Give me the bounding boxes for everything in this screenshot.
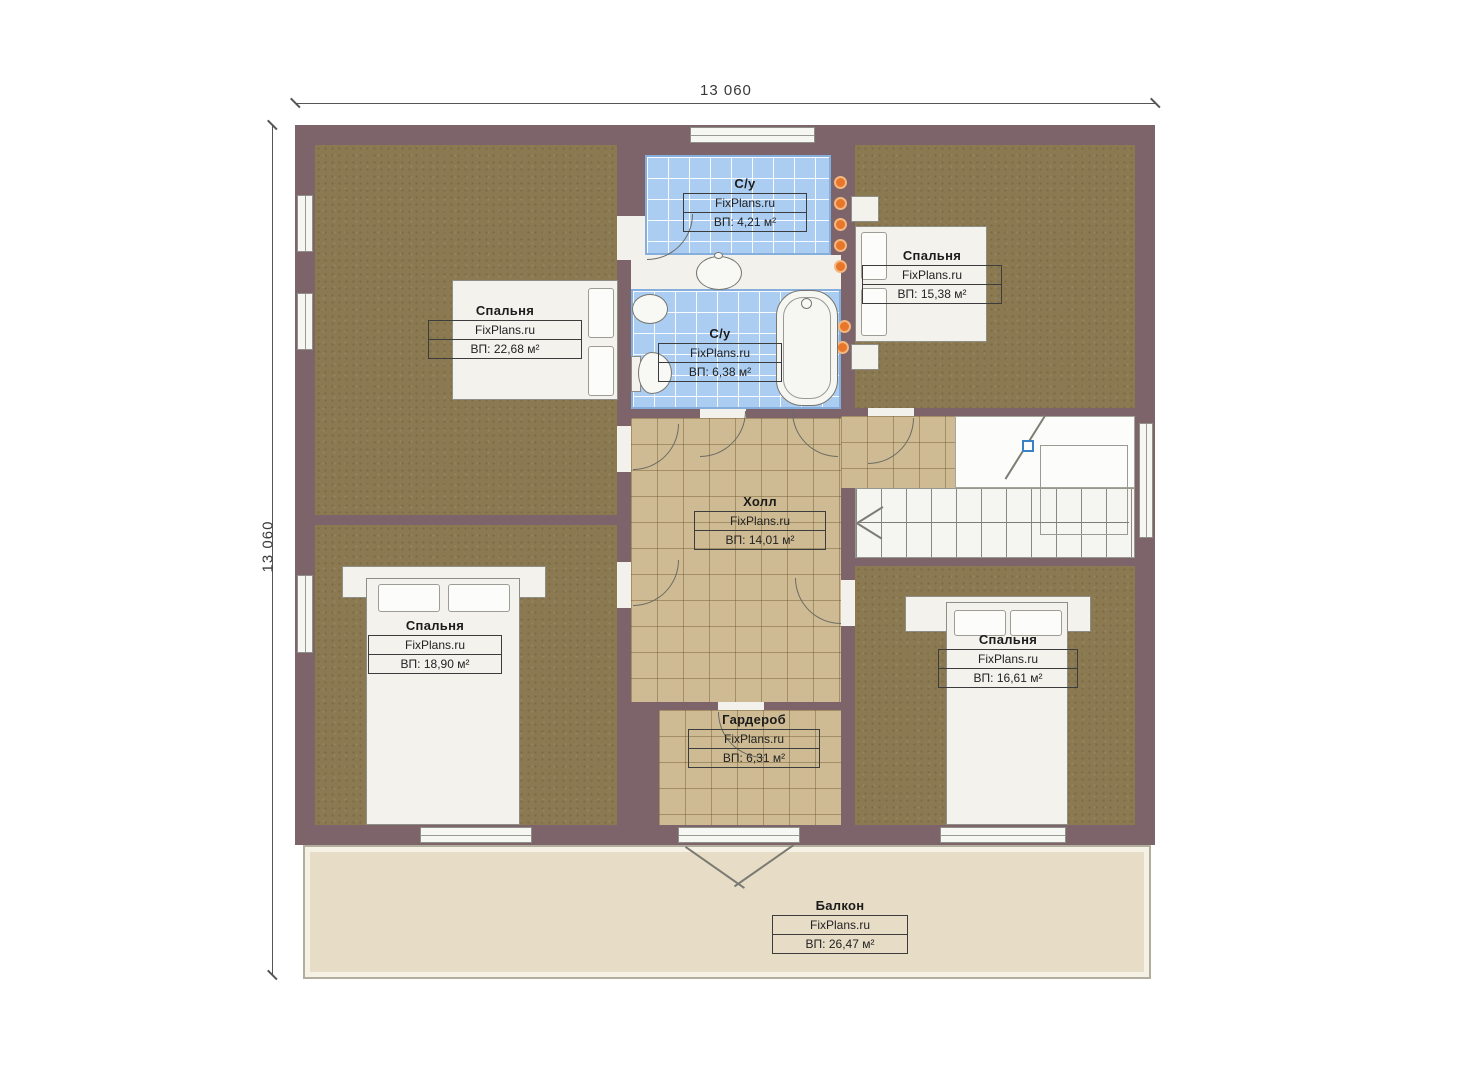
door-opening — [617, 216, 645, 260]
room-brand: FixPlans.ru — [939, 650, 1077, 668]
pillow — [588, 346, 614, 396]
nightstand — [851, 344, 879, 370]
room-area: ВП: 16,61 м² — [939, 668, 1077, 687]
wall-light-dot — [834, 239, 847, 252]
bed — [366, 578, 520, 825]
stair-walk-line — [857, 522, 1129, 523]
room-label-bedroom-top-left: Спальня FixPlans.ru ВП: 22,68 м² — [428, 303, 582, 359]
room-label-bathroom-top: С/у FixPlans.ru ВП: 4,21 м² — [683, 176, 807, 232]
room-name: С/у — [658, 326, 782, 341]
room-label-bedroom-bottom-left: Спальня FixPlans.ru ВП: 18,90 м² — [368, 618, 502, 674]
room-label-bedroom-top-right: Спальня FixPlans.ru ВП: 15,38 м² — [862, 248, 1002, 304]
room-name: Спальня — [862, 248, 1002, 263]
faucet — [714, 252, 723, 259]
room-label-bathroom-main: С/у FixPlans.ru ВП: 6,38 м² — [658, 326, 782, 382]
bathtub-inner — [783, 297, 831, 399]
room-label-bedroom-bottom-right: Спальня FixPlans.ru ВП: 16,61 м² — [938, 632, 1078, 688]
floor-plan-canvas: 13 060 13 060 — [0, 0, 1474, 1080]
balcony-door-opening — [678, 827, 800, 843]
room-label-wardrobe: Гардероб FixPlans.ru ВП: 6,31 м² — [688, 712, 820, 768]
room-area: ВП: 14,01 м² — [695, 530, 825, 549]
window — [1139, 423, 1153, 538]
wall-light-dot — [834, 218, 847, 231]
room-area: ВП: 26,47 м² — [773, 934, 907, 953]
room-name: С/у — [683, 176, 807, 191]
window — [297, 195, 313, 252]
room-label-hall: Холл FixPlans.ru ВП: 14,01 м² — [694, 494, 826, 550]
room-brand: FixPlans.ru — [369, 636, 501, 654]
bathtub-drain — [801, 298, 812, 309]
room-label-balcony: Балкон FixPlans.ru ВП: 26,47 м² — [772, 898, 908, 954]
window — [690, 127, 815, 143]
pillow — [588, 288, 614, 338]
wall-light-dot — [834, 260, 847, 273]
room-brand: FixPlans.ru — [429, 321, 581, 339]
window — [297, 293, 313, 350]
window — [420, 827, 532, 843]
dimension-line-top — [295, 103, 1155, 104]
window — [297, 575, 313, 653]
stair-marker — [1022, 440, 1034, 452]
room-brand: FixPlans.ru — [695, 512, 825, 530]
door-opening — [617, 562, 631, 608]
nightstand — [851, 196, 879, 222]
room-brand: FixPlans.ru — [659, 344, 781, 362]
wall-light-dot — [838, 320, 851, 333]
room-area: ВП: 18,90 м² — [369, 654, 501, 673]
wall-light-dot — [834, 176, 847, 189]
room-area: ВП: 6,31 м² — [689, 748, 819, 767]
room-area: ВП: 15,38 м² — [863, 284, 1001, 303]
room-name: Спальня — [938, 632, 1078, 647]
room-area: ВП: 4,21 м² — [684, 212, 806, 231]
room-name: Спальня — [428, 303, 582, 318]
dimension-label-left: 13 060 — [260, 507, 277, 587]
room-brand: FixPlans.ru — [684, 194, 806, 212]
door-opening — [617, 426, 631, 472]
pillow — [448, 584, 510, 612]
room-balcony — [303, 845, 1151, 979]
door-opening — [868, 408, 914, 416]
room-name: Гардероб — [688, 712, 820, 727]
wall-light-dot — [834, 197, 847, 210]
room-brand: FixPlans.ru — [689, 730, 819, 748]
sink — [632, 294, 668, 324]
dimension-label-top: 13 060 — [700, 82, 752, 99]
window — [940, 827, 1066, 843]
room-brand: FixPlans.ru — [863, 266, 1001, 284]
room-area: ВП: 22,68 м² — [429, 339, 581, 358]
door-opening — [718, 702, 764, 710]
room-brand: FixPlans.ru — [773, 916, 907, 934]
room-area: ВП: 6,38 м² — [659, 362, 781, 381]
sink — [696, 256, 742, 290]
room-name: Спальня — [368, 618, 502, 633]
room-name: Холл — [694, 494, 826, 509]
room-name: Балкон — [772, 898, 908, 913]
pillow — [378, 584, 440, 612]
door-opening — [841, 580, 855, 626]
